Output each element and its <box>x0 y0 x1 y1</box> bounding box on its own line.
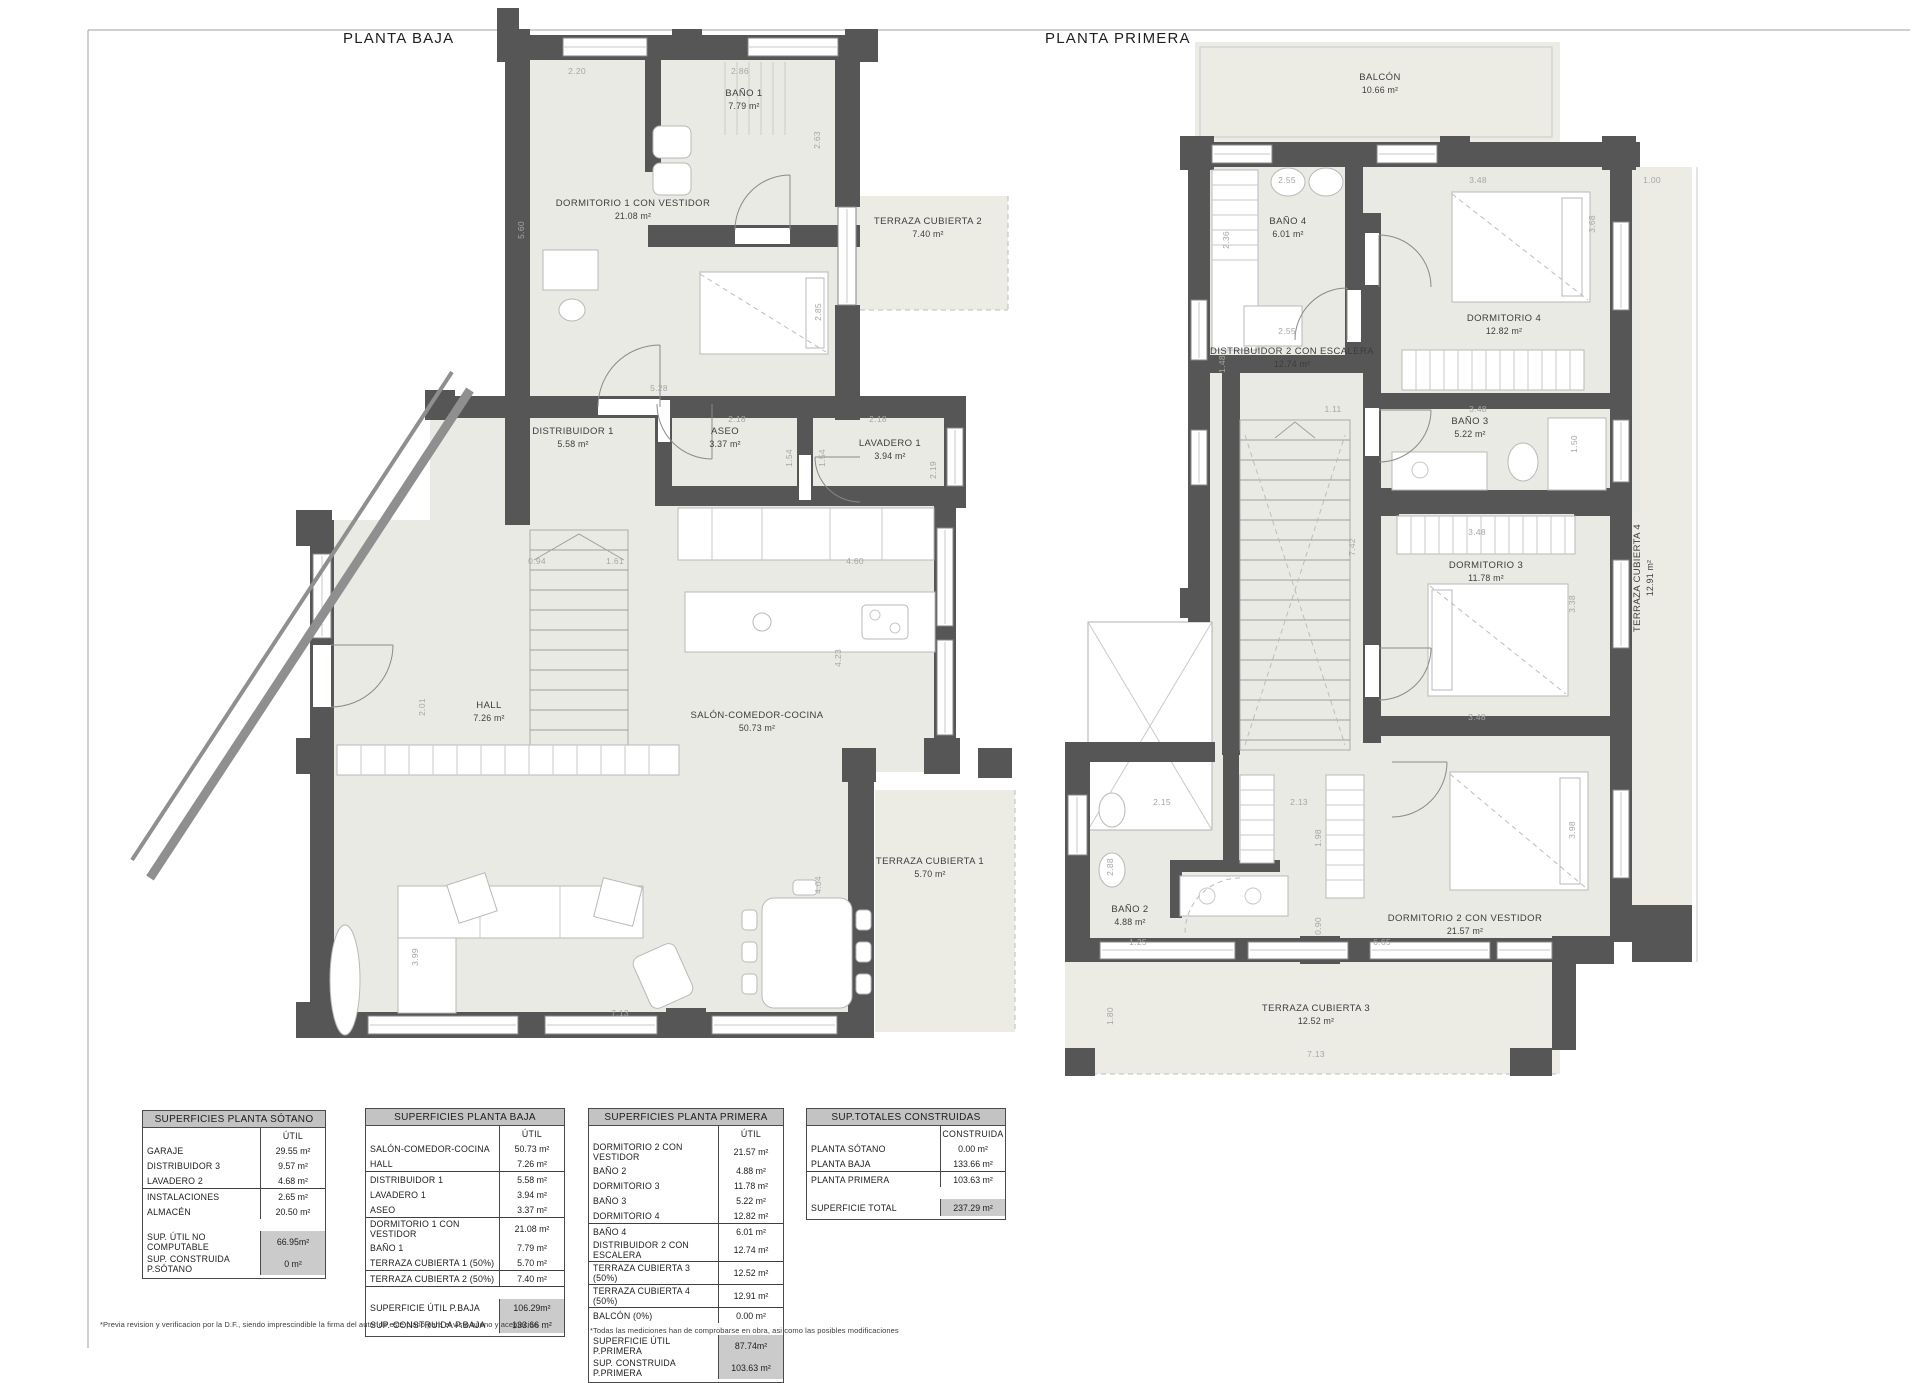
table-colhead-spacer <box>807 1133 940 1135</box>
room-name: LAVADERO 1 <box>859 438 921 450</box>
dimension-label: 4.04 <box>813 876 823 894</box>
room-area: 4.88 m² <box>1111 917 1148 928</box>
table-row: BAÑO 24.88 m² <box>589 1163 783 1178</box>
dimension-label: 3.48 <box>1468 712 1486 722</box>
table-row-value: 133.66 m² <box>940 1156 1005 1171</box>
room-label: HALL7.26 m² <box>473 700 504 724</box>
table-row-value: 5.58 m² <box>499 1172 564 1187</box>
room-label: DISTRIBUIDOR 2 CON ESCALERA12.74 m² <box>1210 346 1374 370</box>
table-total-value: 106.29m² <box>499 1299 564 1316</box>
room-name: HALL <box>473 700 504 712</box>
table-row-value: 7.40 m² <box>499 1271 564 1286</box>
dimension-label: 1.54 <box>817 449 827 467</box>
table-row-label: DISTRIBUIDOR 1 <box>366 1174 499 1186</box>
table-row: DORMITORIO 2 CON VESTIDOR21.57 m² <box>589 1141 783 1163</box>
table-body: ÚTILSALÓN-COMEDOR-COCINA50.73 m²HALL7.26… <box>365 1126 565 1337</box>
table-colhead-value: CONSTRUIDA <box>940 1126 1005 1141</box>
table-row-value: 20.50 m² <box>260 1204 325 1219</box>
room-name: TERRAZA CUBIERTA 1 <box>876 856 984 868</box>
table-row-label: INSTALACIONES <box>143 1191 260 1203</box>
room-area: 7.26 m² <box>473 713 504 724</box>
room-area: 21.08 m² <box>556 211 710 222</box>
table-row-value: 4.88 m² <box>718 1163 783 1178</box>
table-row: HALL7.26 m² <box>366 1156 564 1172</box>
table-row: GARAJE29.55 m² <box>143 1143 325 1158</box>
room-name: BAÑO 4 <box>1269 216 1306 228</box>
footnote-right: *Todas las mediciones han de comprobarse… <box>590 1326 899 1335</box>
dimension-label: 2.85 <box>813 303 823 321</box>
table-gap <box>143 1219 325 1231</box>
table-colhead-spacer <box>589 1133 718 1135</box>
table-row-label: BAÑO 4 <box>589 1226 718 1238</box>
table-total-row: SUPERFICIE ÚTIL P.PRIMERA87.74m² <box>589 1335 783 1357</box>
room-area: 12.52 m² <box>1262 1016 1370 1027</box>
table-row: BAÑO 17.79 m² <box>366 1240 564 1255</box>
table-body: ÚTILGARAJE29.55 m²DISTRIBUIDOR 39.57 m²L… <box>142 1128 326 1279</box>
dimension-label: 2.19 <box>928 461 938 479</box>
dimension-label: 3.98 <box>1567 821 1577 839</box>
table-row: ALMACÉN20.50 m² <box>143 1204 325 1219</box>
dimension-label: 2.88 <box>1105 858 1115 876</box>
dimension-label: 1.54 <box>784 449 794 467</box>
table-row: DORMITORIO 1 CON VESTIDOR21.08 m² <box>366 1218 564 1240</box>
table-row-value: 12.91 m² <box>718 1285 783 1307</box>
room-name: DISTRIBUIDOR 1 <box>532 426 614 438</box>
room-area: 50.73 m² <box>690 723 823 734</box>
room-label: DORMITORIO 2 CON VESTIDOR21.57 m² <box>1388 913 1542 937</box>
dimension-label: 3.38 <box>1567 595 1577 613</box>
room-name: BAÑO 2 <box>1111 904 1148 916</box>
room-name: ASEO <box>709 426 740 438</box>
room-area: 21.57 m² <box>1388 926 1542 937</box>
table-row-label: DORMITORIO 4 <box>589 1210 718 1222</box>
room-label: DISTRIBUIDOR 15.58 m² <box>532 426 614 450</box>
table-row-value: 12.52 m² <box>718 1262 783 1284</box>
dimension-label: 2.55 <box>1278 175 1296 185</box>
table-row-label: TERRAZA CUBIERTA 3 (50%) <box>589 1262 718 1284</box>
table-row: SALÓN-COMEDOR-COCINA50.73 m² <box>366 1141 564 1156</box>
table-title: SUPERFICIES PLANTA BAJA <box>365 1108 565 1126</box>
table-row-label: BAÑO 3 <box>589 1195 718 1207</box>
table-row-label: LAVADERO 1 <box>366 1189 499 1201</box>
table-row: PLANTA PRIMERA103.63 m² <box>807 1172 1005 1187</box>
table-row-label: BALCÓN (0%) <box>589 1310 718 1322</box>
table-row: BAÑO 35.22 m² <box>589 1193 783 1208</box>
table-total-value: 103.63 m² <box>718 1357 783 1379</box>
table-colhead-value: ÚTIL <box>499 1126 564 1141</box>
room-name: SALÓN-COMEDOR-COCINA <box>690 710 823 722</box>
room-label: TERRAZA CUBIERTA 27.40 m² <box>874 216 982 240</box>
table-body: CONSTRUIDAPLANTA SÓTANO0.00 m²PLANTA BAJ… <box>806 1126 1006 1220</box>
table-row: BAÑO 46.01 m² <box>589 1224 783 1239</box>
room-label: BALCÓN10.66 m² <box>1359 72 1400 96</box>
dimension-label: 1.80 <box>1105 1007 1115 1025</box>
dimension-label: 5.28 <box>650 383 668 393</box>
table-column-header: ÚTIL <box>589 1126 783 1141</box>
table-row-value: 6.01 m² <box>718 1224 783 1239</box>
area-table: SUPERFICIES PLANTA SÓTANOÚTILGARAJE29.55… <box>142 1110 326 1279</box>
table-row-label: BAÑO 1 <box>366 1242 499 1254</box>
dimension-label: 3.68 <box>1587 215 1597 233</box>
table-row: PLANTA BAJA133.66 m² <box>807 1156 1005 1172</box>
table-gap <box>807 1187 1005 1199</box>
footnote-left: *Previa revision y verificacion por la D… <box>100 1320 538 1329</box>
dimension-label: 1.50 <box>1569 435 1579 453</box>
table-row-label: DORMITORIO 1 CON VESTIDOR <box>366 1218 499 1240</box>
table-total-row: SUP. CONSTRUIDA P.SÓTANO0 m² <box>143 1253 325 1275</box>
table-row-label: PLANTA BAJA <box>807 1158 940 1170</box>
room-name: TERRAZA CUBIERTA 2 <box>874 216 982 228</box>
dimension-label: 7.13 <box>1307 1049 1325 1059</box>
table-row: TERRAZA CUBIERTA 1 (50%)5.70 m² <box>366 1255 564 1271</box>
table-row-value: 3.94 m² <box>499 1187 564 1202</box>
table-total-label: SUPERFICIE ÚTIL P.PRIMERA <box>589 1335 718 1357</box>
table-row-label: ALMACÉN <box>143 1206 260 1218</box>
room-label: TERRAZA CUBIERTA 412.91 m² <box>1632 524 1656 632</box>
dimension-label: 1.98 <box>1313 829 1323 847</box>
table-row-label: TERRAZA CUBIERTA 4 (50%) <box>589 1285 718 1307</box>
room-area: 12.91 m² <box>1645 524 1656 632</box>
dimension-label: 3.48 <box>1469 175 1487 185</box>
room-name: DORMITORIO 2 CON VESTIDOR <box>1388 913 1542 925</box>
table-row: BALCÓN (0%)0.00 m² <box>589 1308 783 1323</box>
table-row-value: 12.74 m² <box>718 1239 783 1261</box>
dimension-label: 6.65 <box>1373 937 1391 947</box>
dimension-label: 4.23 <box>833 649 843 667</box>
room-name: BAÑO 3 <box>1451 416 1488 428</box>
room-area: 7.79 m² <box>725 101 762 112</box>
dimension-label: 7.42 <box>1347 538 1357 556</box>
table-row-value: 29.55 m² <box>260 1143 325 1158</box>
dimension-label: 2.18 <box>869 414 887 424</box>
area-table: SUP.TOTALES CONSTRUIDASCONSTRUIDAPLANTA … <box>806 1108 1006 1220</box>
dimension-label: 5.60 <box>516 221 526 239</box>
dimension-label: 1.48 <box>1217 355 1227 373</box>
dimension-label: 2.20 <box>568 66 586 76</box>
table-row-label: PLANTA SÓTANO <box>807 1143 940 1155</box>
table-row-label: TERRAZA CUBIERTA 2 (50%) <box>366 1273 499 1285</box>
room-label: TERRAZA CUBIERTA 15.70 m² <box>876 856 984 880</box>
table-row-value: 12.82 m² <box>718 1208 783 1223</box>
table-total-row: SUP. ÚTIL NO COMPUTABLE66.95m² <box>143 1231 325 1253</box>
table-row-value: 5.22 m² <box>718 1193 783 1208</box>
dimension-label: 3.99 <box>410 948 420 966</box>
room-name: DISTRIBUIDOR 2 CON ESCALERA <box>1210 346 1374 358</box>
dimension-label: 7.13 <box>611 1008 629 1018</box>
table-column-header: ÚTIL <box>143 1128 325 1143</box>
dimension-label: 2.13 <box>1290 797 1308 807</box>
room-label: DORMITORIO 412.82 m² <box>1467 313 1541 337</box>
table-row: DORMITORIO 311.78 m² <box>589 1178 783 1193</box>
table-row-value: 0.00 m² <box>940 1141 1005 1156</box>
table-row-value: 11.78 m² <box>718 1178 783 1193</box>
dimension-label: 1.00 <box>1643 175 1661 185</box>
table-colhead-value: ÚTIL <box>260 1128 325 1143</box>
table-row-value: 4.68 m² <box>260 1173 325 1188</box>
room-name: DORMITORIO 4 <box>1467 313 1541 325</box>
room-label: LAVADERO 13.94 m² <box>859 438 921 462</box>
room-area: 5.58 m² <box>532 439 614 450</box>
room-name: DORMITORIO 3 <box>1449 560 1523 572</box>
table-row-value: 2.65 m² <box>260 1189 325 1204</box>
room-area: 3.94 m² <box>859 451 921 462</box>
table-row: PLANTA SÓTANO0.00 m² <box>807 1141 1005 1156</box>
room-label: SALÓN-COMEDOR-COCINA50.73 m² <box>690 710 823 734</box>
dimension-label: 2.86 <box>731 66 749 76</box>
table-row-label: PLANTA PRIMERA <box>807 1174 940 1186</box>
table-row: LAVADERO 13.94 m² <box>366 1187 564 1202</box>
area-table: SUPERFICIES PLANTA PRIMERAÚTILDORMITORIO… <box>588 1108 784 1383</box>
table-row-label: ASEO <box>366 1204 499 1216</box>
table-row-value: 21.57 m² <box>718 1141 783 1163</box>
dimension-label: 1.25 <box>1129 937 1147 947</box>
dimension-label: 2.01 <box>417 698 427 716</box>
table-row: INSTALACIONES2.65 m² <box>143 1189 325 1204</box>
room-label: BAÑO 17.79 m² <box>725 88 762 112</box>
floor-plan-sheet: { "colors": { "wall": "#565656", "floor"… <box>0 0 1920 1357</box>
table-row-label: BAÑO 2 <box>589 1165 718 1177</box>
table-row-value: 7.26 m² <box>499 1156 564 1171</box>
table-row-value: 21.08 m² <box>499 1218 564 1240</box>
room-area: 11.78 m² <box>1449 573 1523 584</box>
table-row: DISTRIBUIDOR 2 CON ESCALERA12.74 m² <box>589 1239 783 1262</box>
table-title: SUP.TOTALES CONSTRUIDAS <box>806 1108 1006 1126</box>
room-area: 6.01 m² <box>1269 229 1306 240</box>
table-row-label: LAVADERO 2 <box>143 1175 260 1187</box>
table-row: LAVADERO 24.68 m² <box>143 1173 325 1189</box>
table-row: DORMITORIO 412.82 m² <box>589 1208 783 1224</box>
plan-baja-drawing <box>132 8 1015 1038</box>
dimension-label: 2.36 <box>1221 231 1231 249</box>
room-area: 7.40 m² <box>874 229 982 240</box>
table-column-header: ÚTIL <box>366 1126 564 1141</box>
table-total-value: 87.74m² <box>718 1335 783 1357</box>
dimension-label: 3.48 <box>1469 404 1487 414</box>
room-label: BAÑO 24.88 m² <box>1111 904 1148 928</box>
room-label: BAÑO 46.01 m² <box>1269 216 1306 240</box>
plan-primera-title: PLANTA PRIMERA <box>1045 30 1191 47</box>
table-row-value: 0.00 m² <box>718 1308 783 1323</box>
room-area: 10.66 m² <box>1359 85 1400 96</box>
table-total-label: SUPERFICIE TOTAL <box>807 1202 940 1214</box>
room-label: BAÑO 35.22 m² <box>1451 416 1488 440</box>
table-colhead-spacer <box>143 1135 260 1137</box>
room-area: 3.37 m² <box>709 439 740 450</box>
plan-baja-title: PLANTA BAJA <box>343 30 454 47</box>
table-row-label: DISTRIBUIDOR 3 <box>143 1160 260 1172</box>
room-label: DORMITORIO 1 CON VESTIDOR21.08 m² <box>556 198 710 222</box>
room-name: TERRAZA CUBIERTA 3 <box>1262 1003 1370 1015</box>
table-row: TERRAZA CUBIERTA 2 (50%)7.40 m² <box>366 1271 564 1287</box>
table-total-row: SUPERFICIE ÚTIL P.BAJA106.29m² <box>366 1299 564 1316</box>
room-name: DORMITORIO 1 CON VESTIDOR <box>556 198 710 210</box>
table-column-header: CONSTRUIDA <box>807 1126 1005 1141</box>
table-row: DISTRIBUIDOR 39.57 m² <box>143 1158 325 1173</box>
dimension-label: 4.60 <box>846 556 864 566</box>
room-name: BAÑO 1 <box>725 88 762 100</box>
room-label: TERRAZA CUBIERTA 312.52 m² <box>1262 1003 1370 1027</box>
dimension-label: 2.55 <box>1278 326 1296 336</box>
dimension-label: 1.61 <box>606 556 624 566</box>
dimension-label: 1.11 <box>1324 404 1341 414</box>
room-area: 5.22 m² <box>1451 429 1488 440</box>
table-total-label: SUP. ÚTIL NO COMPUTABLE <box>143 1231 260 1253</box>
room-label: DORMITORIO 311.78 m² <box>1449 560 1523 584</box>
table-row-value: 9.57 m² <box>260 1158 325 1173</box>
table-total-label: SUP. CONSTRUIDA P.SÓTANO <box>143 1253 260 1275</box>
room-label: ASEO3.37 m² <box>709 426 740 450</box>
table-row-value: 3.37 m² <box>499 1202 564 1217</box>
table-row-label: DORMITORIO 2 CON VESTIDOR <box>589 1141 718 1163</box>
room-area: 12.74 m² <box>1210 359 1374 370</box>
room-name: BALCÓN <box>1359 72 1400 84</box>
room-area: 12.82 m² <box>1467 326 1541 337</box>
table-row-value: 5.70 m² <box>499 1255 564 1270</box>
table-total-value: 0 m² <box>260 1253 325 1275</box>
dimension-label: 3.48 <box>1468 527 1486 537</box>
table-row: TERRAZA CUBIERTA 3 (50%)12.52 m² <box>589 1262 783 1285</box>
table-title: SUPERFICIES PLANTA SÓTANO <box>142 1110 326 1128</box>
table-total-value: 66.95m² <box>260 1231 325 1253</box>
table-row-value: 7.79 m² <box>499 1240 564 1255</box>
table-row-label: DORMITORIO 3 <box>589 1180 718 1192</box>
dimension-label: 0.94 <box>528 556 546 566</box>
area-table: SUPERFICIES PLANTA BAJAÚTILSALÓN-COMEDOR… <box>365 1108 565 1337</box>
table-row-label: HALL <box>366 1158 499 1170</box>
table-row-label: SALÓN-COMEDOR-COCINA <box>366 1143 499 1155</box>
table-total-row: SUP. CONSTRUIDA P.PRIMERA103.63 m² <box>589 1357 783 1379</box>
room-area: 5.70 m² <box>876 869 984 880</box>
table-row: DISTRIBUIDOR 15.58 m² <box>366 1172 564 1187</box>
table-colhead-value: ÚTIL <box>718 1126 783 1141</box>
table-total-value: 237.29 m² <box>940 1199 1005 1216</box>
table-colhead-spacer <box>366 1133 499 1135</box>
table-body: ÚTILDORMITORIO 2 CON VESTIDOR21.57 m²BAÑ… <box>588 1126 784 1383</box>
plan-primera-drawing <box>1065 42 1697 1076</box>
table-row: TERRAZA CUBIERTA 4 (50%)12.91 m² <box>589 1285 783 1308</box>
table-title: SUPERFICIES PLANTA PRIMERA <box>588 1108 784 1126</box>
room-name: TERRAZA CUBIERTA 4 <box>1632 524 1644 632</box>
dimension-label: 2.18 <box>728 414 746 424</box>
dimension-label: 2.15 <box>1153 797 1171 807</box>
table-row-value: 103.63 m² <box>940 1172 1005 1187</box>
table-row-label: TERRAZA CUBIERTA 1 (50%) <box>366 1257 499 1269</box>
dimension-label: 0.90 <box>1313 917 1323 935</box>
table-row-label: DISTRIBUIDOR 2 CON ESCALERA <box>589 1239 718 1261</box>
table-total-row: SUPERFICIE TOTAL237.29 m² <box>807 1199 1005 1216</box>
table-gap <box>366 1287 564 1299</box>
table-total-label: SUP. CONSTRUIDA P.PRIMERA <box>589 1357 718 1379</box>
table-row-label: GARAJE <box>143 1145 260 1157</box>
table-row-value: 50.73 m² <box>499 1141 564 1156</box>
table-row: ASEO3.37 m² <box>366 1202 564 1218</box>
table-total-label: SUPERFICIE ÚTIL P.BAJA <box>366 1302 499 1314</box>
dimension-label: 2.63 <box>812 131 822 149</box>
